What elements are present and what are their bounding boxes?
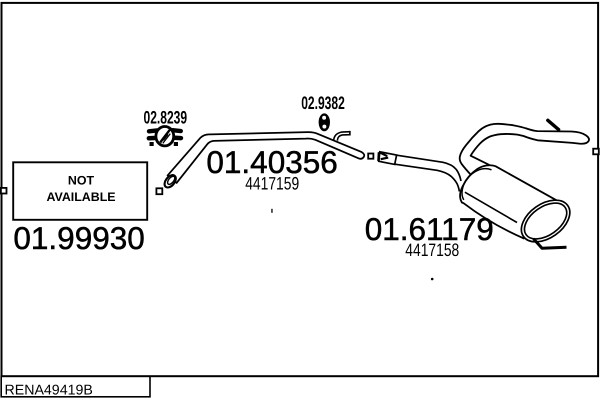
svg-text:4417158: 4417158 — [405, 240, 459, 260]
svg-text:4417159: 4417159 — [245, 173, 299, 193]
svg-text:02.8239: 02.8239 — [144, 107, 188, 127]
svg-text:NOT: NOT — [68, 174, 95, 188]
svg-text:AVAILABLE: AVAILABLE — [46, 190, 115, 204]
svg-text:02.9382: 02.9382 — [301, 93, 345, 113]
svg-text:RENA49419B: RENA49419B — [5, 382, 93, 398]
svg-text:01.99930: 01.99930 — [13, 220, 144, 256]
